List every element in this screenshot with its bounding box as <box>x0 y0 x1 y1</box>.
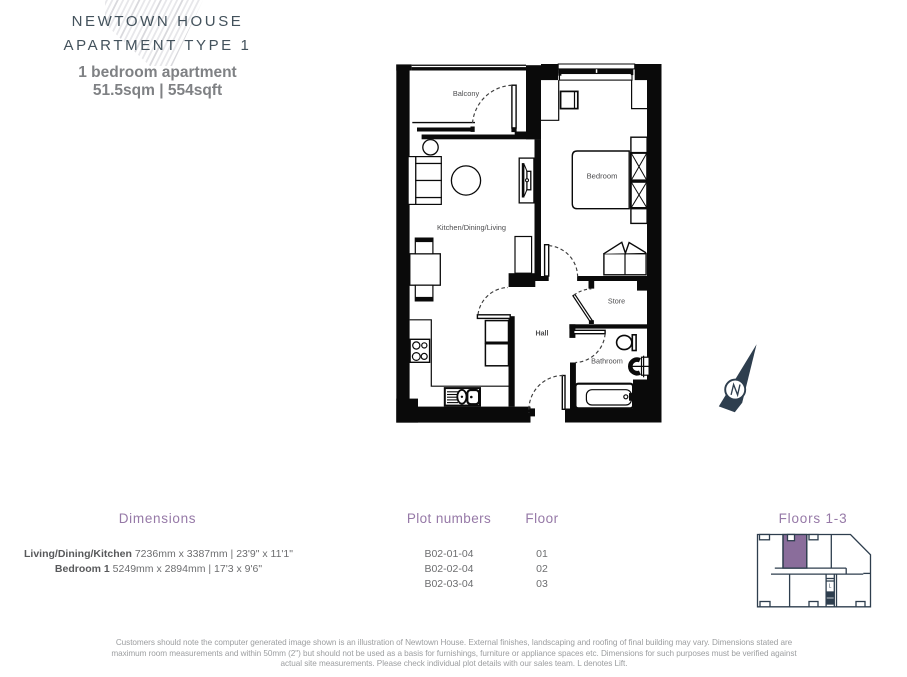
svg-text:Kitchen/Dining/Living: Kitchen/Dining/Living <box>437 223 506 232</box>
svg-text:Store: Store <box>608 297 625 306</box>
svg-text:Balcony: Balcony <box>453 89 480 98</box>
svg-text:Bedroom: Bedroom <box>587 172 618 181</box>
svg-text:Bathroom: Bathroom <box>591 357 623 366</box>
svg-text:Hall: Hall <box>535 330 548 338</box>
svg-text:L: L <box>829 584 832 590</box>
